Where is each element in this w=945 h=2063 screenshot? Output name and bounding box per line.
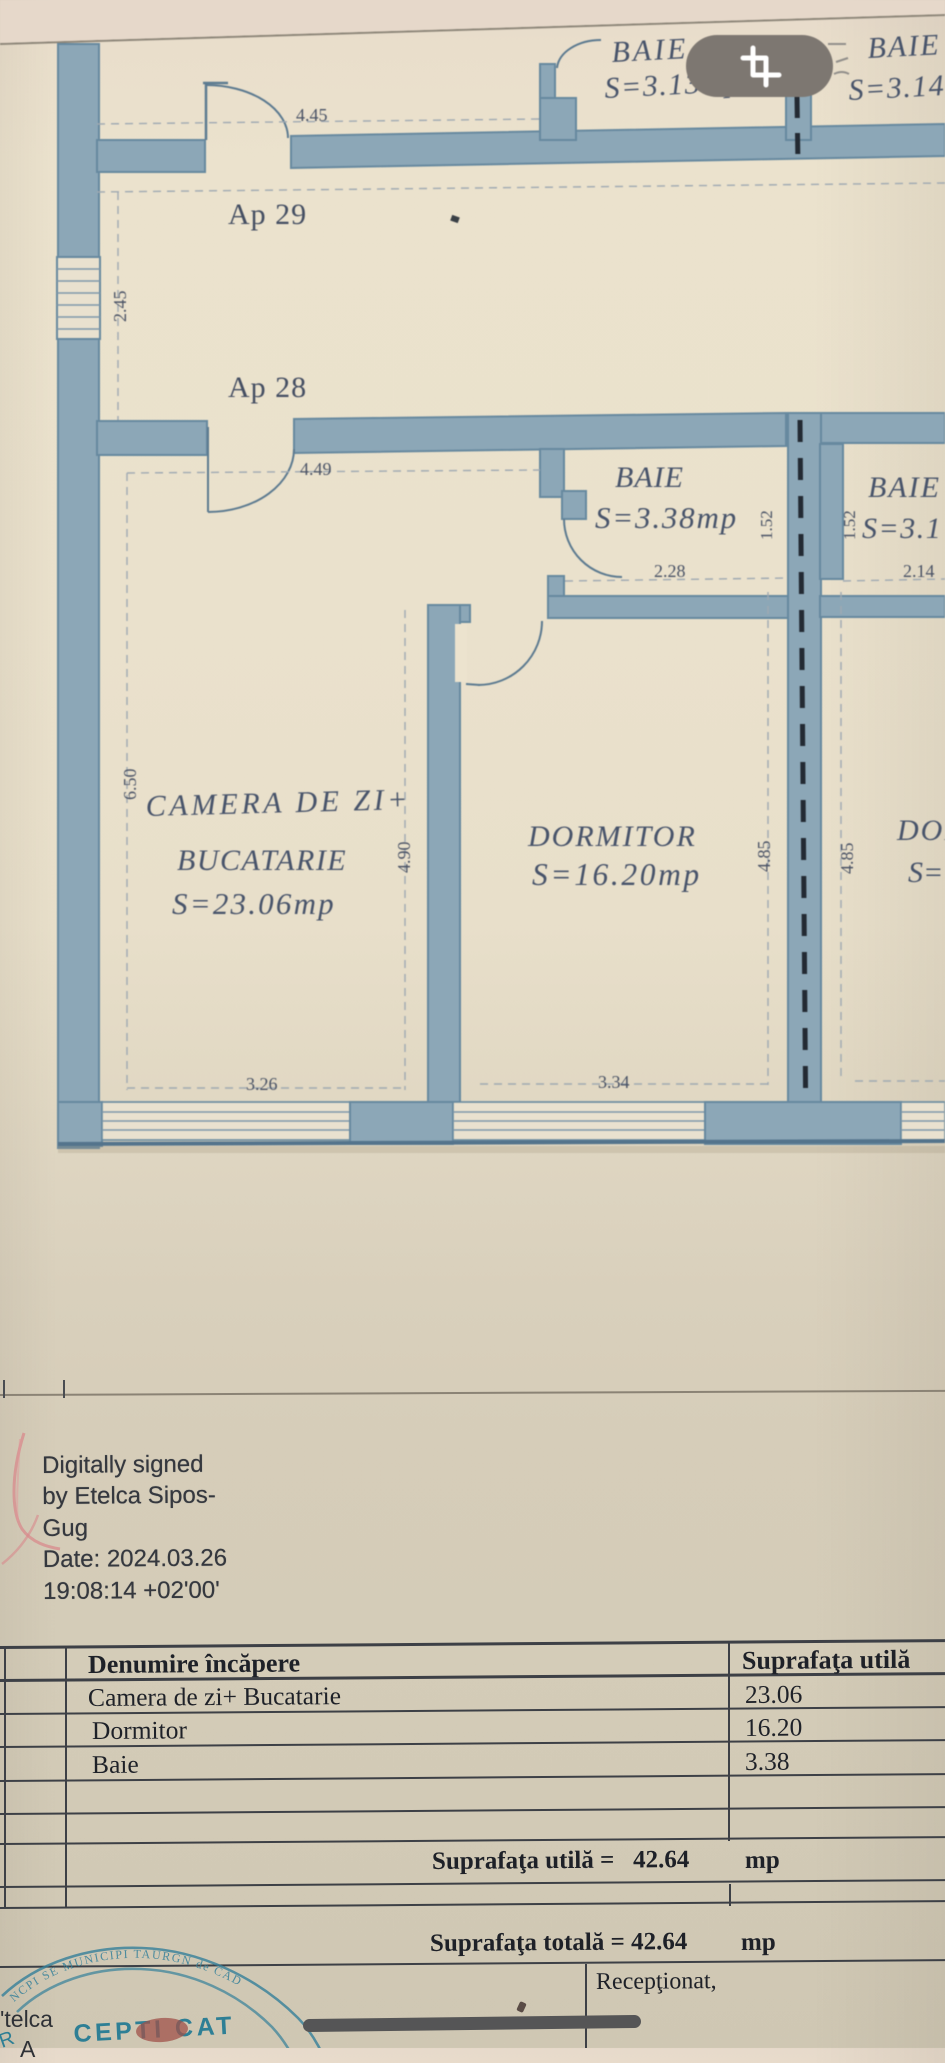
svg-text:BUCATARIE: BUCATARIE: [177, 844, 347, 877]
svg-text:S=3.14: S=3.14: [848, 69, 945, 107]
svg-text:3.34: 3.34: [598, 1072, 630, 1092]
svg-text:2.45: 2.45: [110, 291, 130, 323]
svg-text:S=23.06mp: S=23.06mp: [172, 886, 336, 921]
svg-text:BAIE: BAIE: [867, 28, 942, 65]
svg-text:NCPI SE MUNICIPI TAURGN de CAD: NCPI SE MUNICIPI TAURGN de CAD: [7, 1947, 245, 2005]
svg-text:S=3.38mp: S=3.38mp: [595, 500, 738, 535]
svg-text:4.49: 4.49: [300, 459, 332, 479]
svg-text:4.85: 4.85: [837, 843, 857, 875]
svg-text:S=3.1: S=3.1: [862, 512, 942, 545]
svg-text:BAIE: BAIE: [611, 32, 690, 69]
svg-text:BAIE: BAIE: [868, 471, 941, 504]
svg-text:1.52: 1.52: [757, 510, 776, 540]
svg-text:4.45: 4.45: [296, 105, 328, 125]
svg-text:Ap 28: Ap 28: [228, 371, 307, 404]
svg-text:1.52: 1.52: [840, 510, 859, 540]
svg-text:BAIE: BAIE: [615, 461, 684, 494]
svg-text:4.85: 4.85: [754, 841, 774, 873]
svg-text:2.28: 2.28: [654, 561, 686, 581]
svg-text:DORMITOR: DORMITOR: [527, 820, 697, 853]
svg-text:6.50: 6.50: [120, 769, 140, 801]
svg-text:CAMERA DE ZI+: CAMERA DE ZI+: [145, 783, 411, 823]
svg-text:4.90: 4.90: [394, 842, 414, 874]
svg-text:2.14: 2.14: [903, 561, 935, 581]
svg-text:S=16.20mp: S=16.20mp: [532, 857, 702, 892]
svg-text:3.26: 3.26: [246, 1074, 278, 1094]
svg-text:S=: S=: [908, 856, 943, 889]
svg-text:Ap 29: Ap 29: [228, 198, 307, 231]
svg-text:DOR: DOR: [896, 814, 945, 847]
